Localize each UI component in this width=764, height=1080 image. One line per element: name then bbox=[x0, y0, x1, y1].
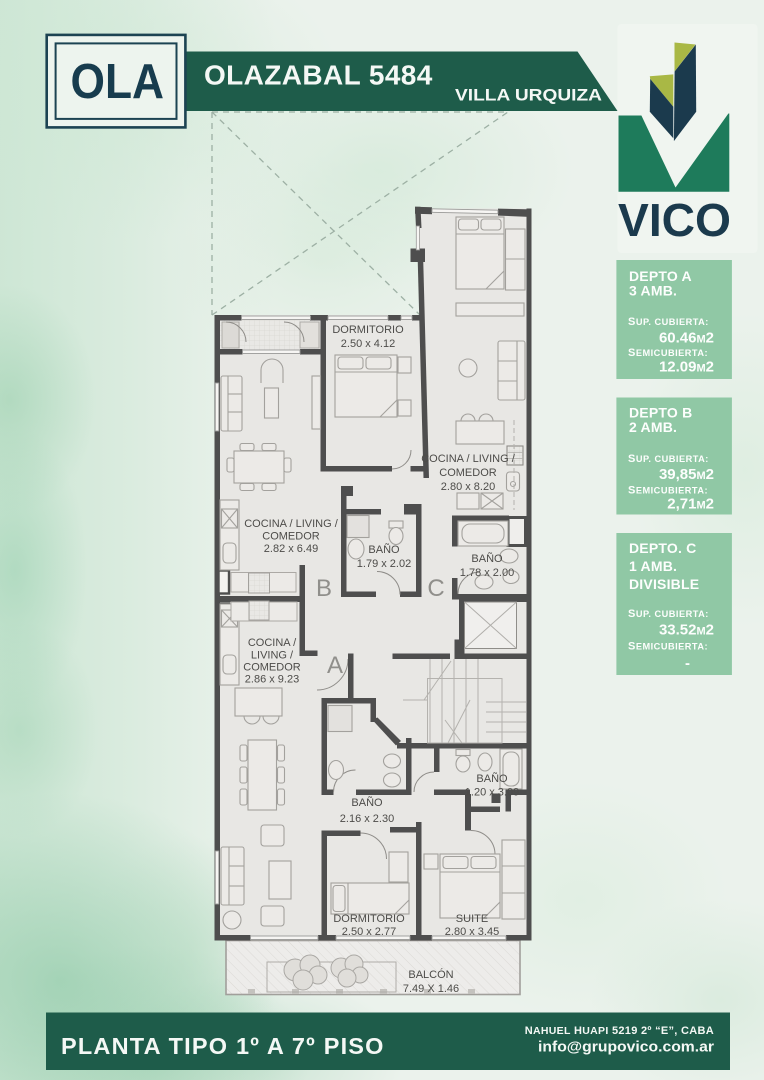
svg-text:OLAZABAL 5484: OLAZABAL 5484 bbox=[204, 60, 433, 91]
svg-text:2,71M2: 2,71M2 bbox=[667, 496, 714, 513]
svg-text:B: B bbox=[316, 575, 332, 602]
svg-text:OLA: OLA bbox=[71, 55, 165, 109]
svg-text:VILLA URQUIZA: VILLA URQUIZA bbox=[455, 86, 602, 105]
svg-text:39,85M2: 39,85M2 bbox=[659, 466, 714, 483]
svg-text:NAHUEL HUAPI 5219 2º “E”, CABA: NAHUEL HUAPI 5219 2º “E”, CABA bbox=[525, 1025, 714, 1037]
svg-text:DORMITORIO: DORMITORIO bbox=[333, 913, 405, 925]
svg-text:SUITE: SUITE bbox=[456, 913, 488, 925]
svg-text:BAÑO: BAÑO bbox=[351, 796, 383, 809]
svg-text:2.16 x 2.30: 2.16 x 2.30 bbox=[340, 813, 394, 825]
svg-text:1.78 x 2.00: 1.78 x 2.00 bbox=[460, 567, 514, 579]
svg-text:SEMICUBIERTA:: SEMICUBIERTA: bbox=[628, 347, 708, 359]
svg-text:-: - bbox=[685, 655, 690, 672]
svg-text:60.46M2: 60.46M2 bbox=[659, 330, 714, 347]
svg-text:COCINA / LIVING /: COCINA / LIVING / bbox=[421, 453, 515, 465]
svg-text:COMEDOR: COMEDOR bbox=[262, 531, 320, 543]
svg-text:2.80 x 3.45: 2.80 x 3.45 bbox=[445, 926, 499, 938]
svg-text:2.86 x 9.23: 2.86 x 9.23 bbox=[245, 674, 299, 686]
svg-text:BAÑO: BAÑO bbox=[368, 543, 400, 556]
svg-text:VICO: VICO bbox=[618, 194, 731, 246]
svg-text:SUP. CUBIERTA:: SUP. CUBIERTA: bbox=[628, 453, 709, 465]
svg-text:COMEDOR: COMEDOR bbox=[243, 662, 301, 674]
svg-text:info@grupovico.com.ar: info@grupovico.com.ar bbox=[538, 1039, 714, 1056]
svg-text:2.80 x 8.20: 2.80 x 8.20 bbox=[441, 481, 495, 493]
svg-text:2 AMB.: 2 AMB. bbox=[629, 419, 677, 435]
svg-text:A: A bbox=[327, 652, 343, 679]
svg-text:COCINA /: COCINA / bbox=[248, 637, 297, 649]
svg-text:2.50 x 4.12: 2.50 x 4.12 bbox=[341, 338, 395, 350]
svg-text:12.09M2: 12.09M2 bbox=[659, 359, 714, 376]
svg-text:1.79 x 2.02: 1.79 x 2.02 bbox=[357, 558, 411, 570]
svg-text:COCINA / LIVING /: COCINA / LIVING / bbox=[244, 518, 338, 530]
svg-text:COMEDOR: COMEDOR bbox=[439, 467, 497, 479]
svg-text:BAÑO: BAÑO bbox=[476, 772, 508, 785]
svg-text:SEMICUBIERTA:: SEMICUBIERTA: bbox=[628, 641, 708, 653]
svg-text:DORMITORIO: DORMITORIO bbox=[332, 324, 404, 336]
svg-text:BALCÓN: BALCÓN bbox=[408, 968, 453, 981]
svg-text:SUP. CUBIERTA:: SUP. CUBIERTA: bbox=[628, 316, 709, 328]
svg-text:PLANTA TIPO 1º A 7º PISO: PLANTA TIPO 1º A 7º PISO bbox=[61, 1033, 385, 1059]
svg-text:7.49 X 1.46: 7.49 X 1.46 bbox=[403, 983, 459, 995]
svg-text:LIVING /: LIVING / bbox=[251, 650, 294, 662]
svg-text:DEPTO. C: DEPTO. C bbox=[629, 540, 696, 556]
svg-text:33.52M2: 33.52M2 bbox=[659, 622, 714, 639]
svg-text:3 AMB.: 3 AMB. bbox=[629, 283, 677, 299]
svg-text:C: C bbox=[427, 575, 444, 602]
svg-text:DIVISIBLE: DIVISIBLE bbox=[629, 576, 699, 592]
svg-text:2.82 x 6.49: 2.82 x 6.49 bbox=[264, 543, 318, 555]
svg-text:1 AMB.: 1 AMB. bbox=[629, 558, 677, 574]
svg-text:SUP. CUBIERTA:: SUP. CUBIERTA: bbox=[628, 608, 709, 620]
svg-text:BAÑO: BAÑO bbox=[471, 552, 503, 565]
svg-text:1.20 x 3.09: 1.20 x 3.09 bbox=[465, 787, 519, 799]
svg-text:2.50 x 2.77: 2.50 x 2.77 bbox=[342, 926, 396, 938]
